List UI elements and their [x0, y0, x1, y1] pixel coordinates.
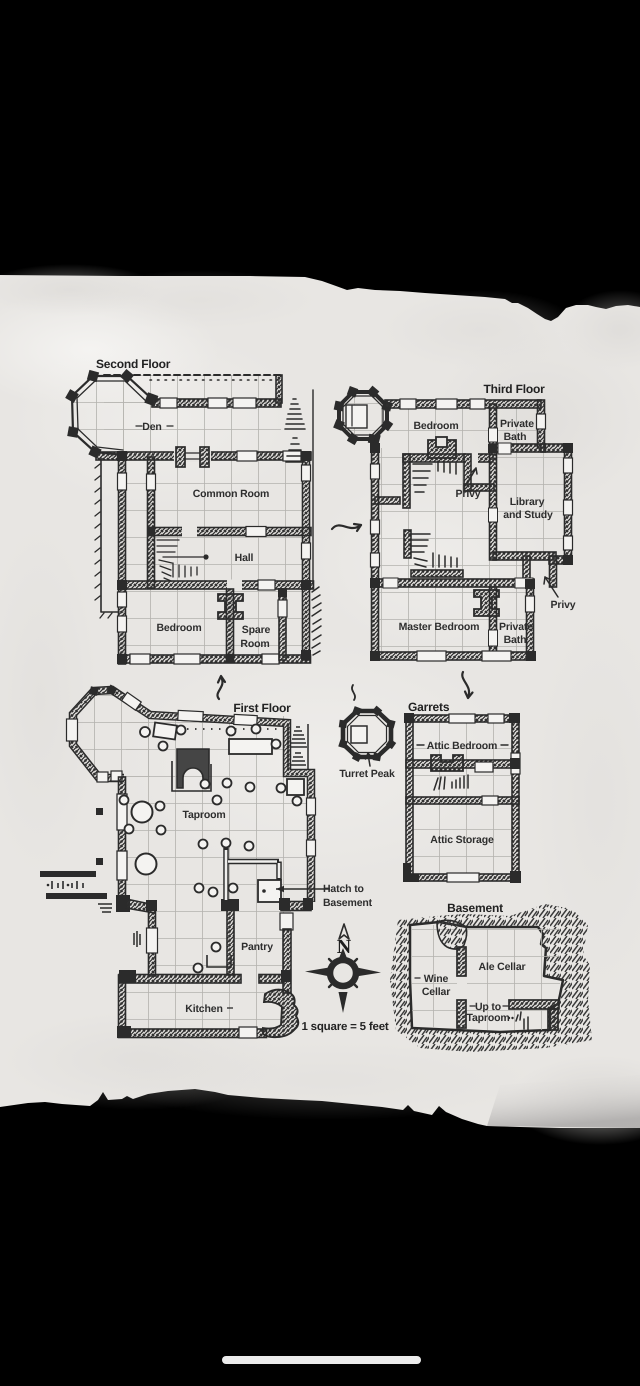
- svg-text:Turret Peak: Turret Peak: [339, 768, 395, 780]
- svg-text:Third Floor: Third Floor: [483, 382, 545, 396]
- svg-text:Attic Bedroom: Attic Bedroom: [427, 740, 497, 752]
- svg-text:Hatch to: Hatch to: [323, 883, 364, 895]
- svg-text:Hall: Hall: [235, 552, 254, 564]
- svg-text:Bedroom: Bedroom: [413, 420, 458, 432]
- svg-text:Garrets: Garrets: [408, 700, 450, 714]
- svg-text:Privy: Privy: [551, 599, 576, 611]
- svg-text:Taproom: Taproom: [182, 809, 225, 821]
- svg-text:Spare: Spare: [242, 624, 271, 636]
- svg-text:Room: Room: [240, 638, 269, 650]
- svg-text:Taproom: Taproom: [466, 1012, 509, 1024]
- svg-text:Common Room: Common Room: [193, 488, 270, 500]
- svg-text:Pantry: Pantry: [241, 941, 273, 953]
- svg-text:Den: Den: [142, 421, 161, 433]
- svg-text:Bath: Bath: [504, 431, 527, 443]
- svg-text:Second Floor: Second Floor: [96, 357, 171, 371]
- svg-text:Privy: Privy: [456, 488, 481, 500]
- svg-text:Library: Library: [510, 496, 545, 508]
- svg-text:Bedroom: Bedroom: [156, 622, 201, 634]
- svg-text:1 square = 5 feet: 1 square = 5 feet: [301, 1021, 388, 1033]
- svg-text:Kitchen: Kitchen: [185, 1003, 222, 1015]
- svg-text:First Floor: First Floor: [233, 701, 291, 715]
- svg-text:Attic Storage: Attic Storage: [430, 834, 494, 846]
- svg-text:Basement: Basement: [447, 901, 503, 915]
- svg-text:Basement: Basement: [323, 897, 373, 909]
- svg-text:Wine: Wine: [424, 973, 449, 985]
- svg-text:Bath: Bath: [504, 634, 527, 646]
- svg-text:Ale Cellar: Ale Cellar: [479, 961, 526, 973]
- svg-text:Cellar: Cellar: [422, 986, 450, 998]
- svg-text:and Study: and Study: [503, 509, 553, 521]
- svg-text:Private: Private: [500, 418, 534, 430]
- svg-text:Master Bedroom: Master Bedroom: [399, 621, 480, 633]
- svg-text:Private: Private: [499, 621, 533, 633]
